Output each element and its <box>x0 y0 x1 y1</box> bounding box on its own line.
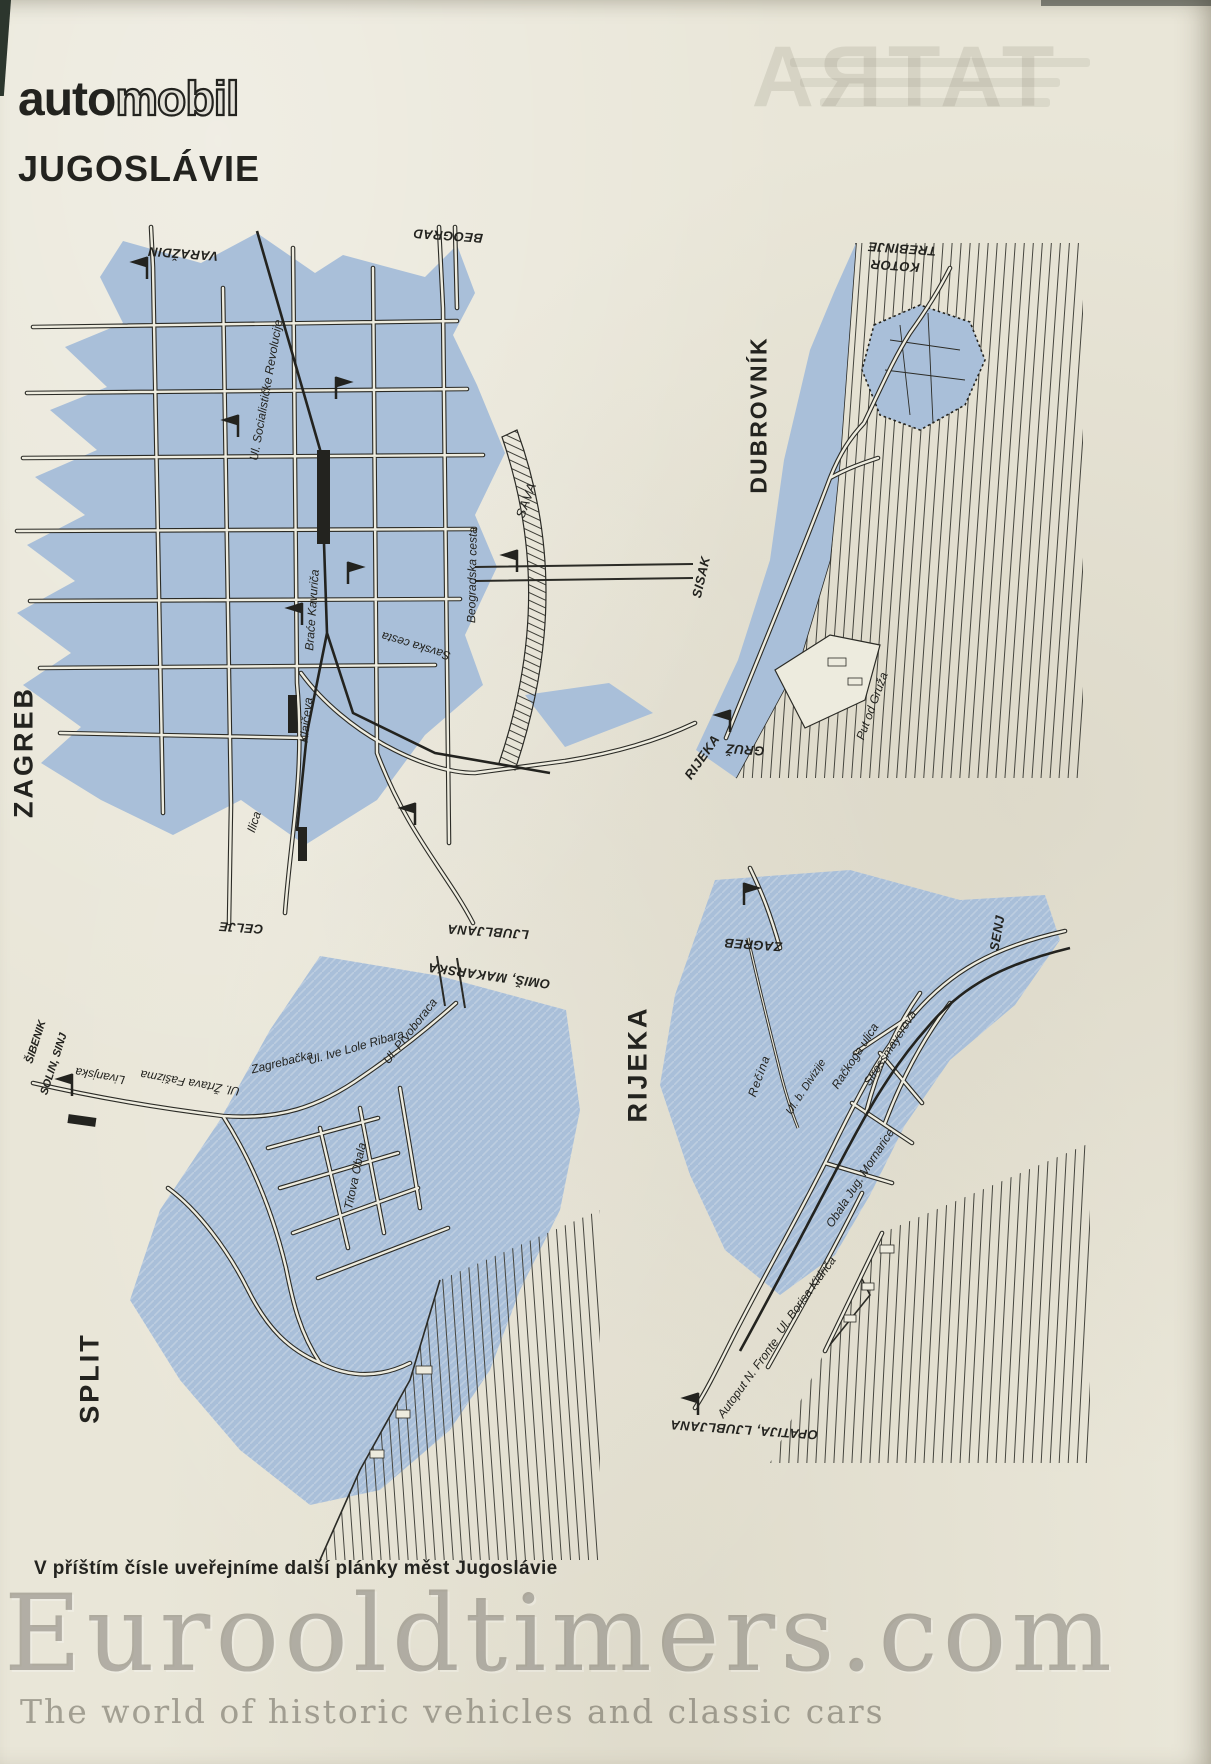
watermark-main: Eurooldtimers.com <box>4 1572 1209 1695</box>
pier <box>828 658 846 666</box>
pier <box>370 1450 384 1458</box>
logo-mobil: mobil <box>115 73 238 126</box>
label-road-celje: CELJE <box>218 919 263 937</box>
split-map-graphic <box>18 948 603 1563</box>
bleedthrough-line <box>800 78 1060 87</box>
label-city-rijeka: RIJEKA <box>623 1005 654 1122</box>
scan-edge-line <box>1041 0 1211 6</box>
scan-edge-mark <box>0 0 11 96</box>
zagreb-map-graphic <box>5 213 695 968</box>
magazine-page: TATRA automobil JUGOSLÁVIE <box>0 0 1211 1764</box>
station-block <box>317 450 330 544</box>
bleedthrough-line <box>790 58 1090 67</box>
station-block <box>67 1114 96 1127</box>
logo-auto: auto <box>18 73 115 126</box>
page-title: JUGOSLÁVIE <box>18 148 260 190</box>
rijeka-map-graphic <box>618 853 1093 1468</box>
pier <box>848 678 862 685</box>
pier <box>396 1410 410 1418</box>
station-block <box>288 695 297 733</box>
magazine-logo: automobil <box>18 76 238 124</box>
bleedthrough-line <box>820 98 1050 107</box>
pier <box>844 1315 856 1322</box>
pier <box>862 1283 874 1290</box>
pier <box>416 1366 432 1374</box>
label-city-zagreb: ZAGREB <box>9 686 40 818</box>
city-blue-area <box>525 683 653 747</box>
label-city-split: SPLIT <box>75 1332 106 1424</box>
label-city-dubrovnik: DUBROVNÍK <box>746 336 773 493</box>
label-street-beogradska: Beogradska cesta <box>464 527 480 623</box>
sava-river <box>499 430 546 770</box>
label-road-gruz: GRUŽ <box>725 741 765 759</box>
watermark-sub: The world of historic vehicles and class… <box>20 1692 885 1731</box>
station-block <box>298 827 307 861</box>
dubrovnik-map-graphic <box>678 228 1088 783</box>
pier <box>880 1245 894 1253</box>
